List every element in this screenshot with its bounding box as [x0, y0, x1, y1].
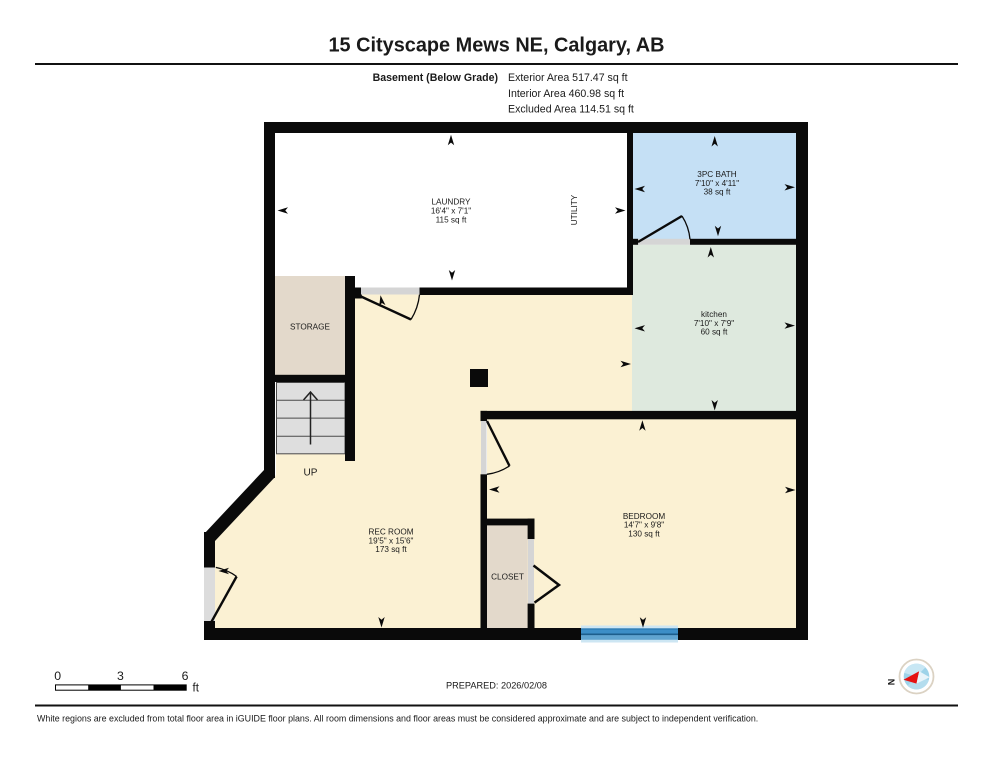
- svg-text:6: 6: [182, 669, 189, 683]
- svg-text:Excluded Area 114.51 sq ft: Excluded Area 114.51 sq ft: [508, 104, 634, 116]
- svg-text:BEDROOM14'7" x 9'8"130 sq ft: BEDROOM14'7" x 9'8"130 sq ft: [623, 512, 665, 538]
- svg-text:0: 0: [54, 669, 61, 683]
- svg-text:N: N: [887, 679, 897, 686]
- svg-text:White regions are excluded fro: White regions are excluded from total fl…: [37, 714, 758, 724]
- svg-text:LAUNDRY16'4" x 7'1"115 sq ft: LAUNDRY16'4" x 7'1"115 sq ft: [431, 198, 471, 225]
- svg-text:UP: UP: [304, 468, 318, 479]
- svg-text:PREPARED: 2026/02/08: PREPARED: 2026/02/08: [446, 681, 547, 691]
- svg-text:Interior Area 460.98 sq ft: Interior Area 460.98 sq ft: [508, 88, 624, 100]
- svg-text:ft: ft: [193, 683, 200, 695]
- svg-text:CLOSET: CLOSET: [491, 573, 524, 582]
- svg-text:3: 3: [117, 669, 124, 683]
- svg-text:Exterior Area 517.47 sq ft: Exterior Area 517.47 sq ft: [508, 72, 628, 84]
- svg-text:15 Cityscape Mews NE, Calgary,: 15 Cityscape Mews NE, Calgary, AB: [328, 34, 664, 56]
- svg-text:STORAGE: STORAGE: [290, 322, 330, 331]
- svg-text:Basement (Below Grade): Basement (Below Grade): [373, 72, 498, 84]
- svg-text:UTILITY: UTILITY: [570, 194, 579, 225]
